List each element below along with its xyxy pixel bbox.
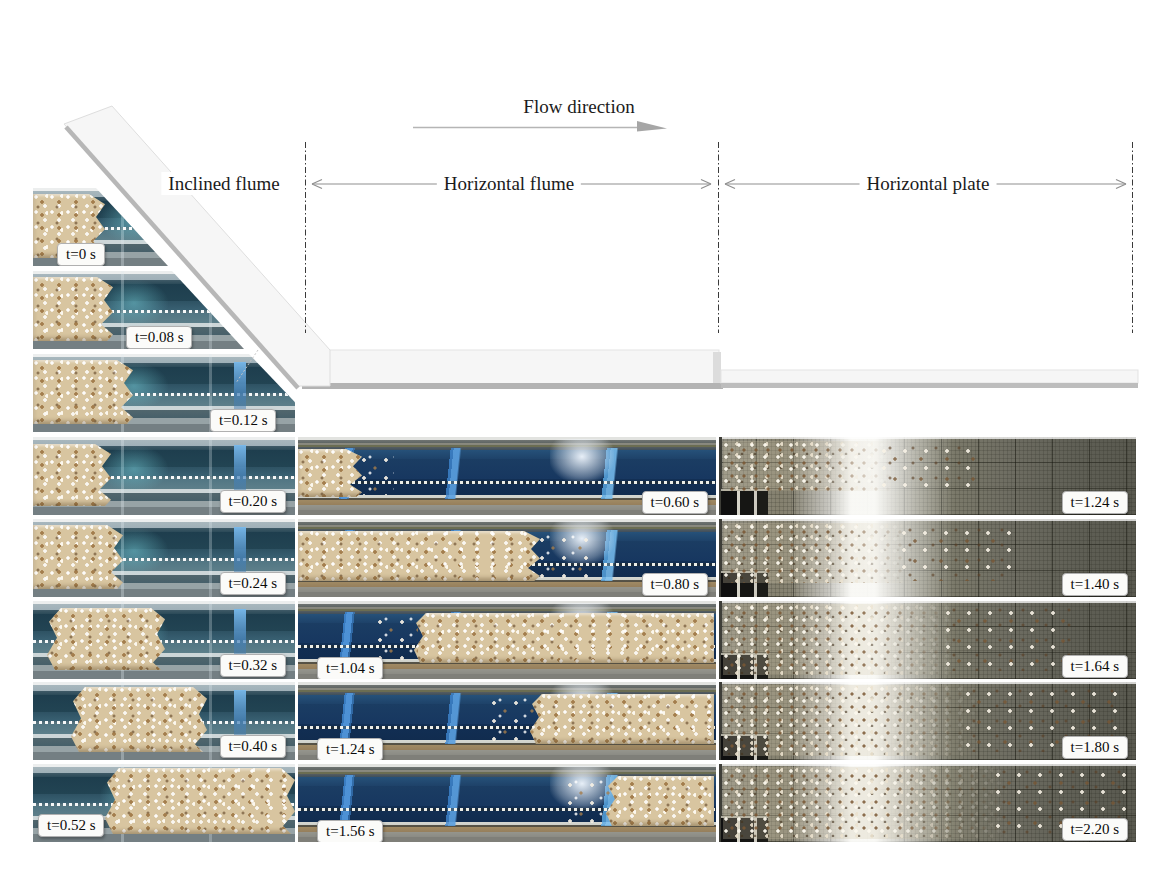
photo-frame-plate-4: t=1.80 s (719, 682, 1136, 760)
blue-stripe (234, 279, 246, 336)
photo-frame-inclined-4: t=0.20 s (33, 437, 295, 515)
granular-mass (33, 360, 133, 424)
granular-mass (414, 613, 714, 663)
photo-frame-inclined-8: t=0.52 s (33, 764, 295, 842)
time-label: t=0.32 s (220, 654, 286, 677)
plate-bottom-shadow (721, 383, 1138, 388)
granular-mass (723, 523, 915, 583)
scattered-grains (566, 780, 610, 824)
granular-mass (298, 449, 362, 497)
granular-mass (298, 531, 540, 581)
time-label: t=0.52 s (38, 814, 104, 837)
scattered-grains (943, 607, 1071, 671)
photo-frame-inclined-7: t=0.40 s (33, 682, 295, 760)
photo-frame-flume-1: t=0.60 s (298, 437, 716, 515)
time-label: t=0 s (57, 243, 105, 266)
photo-frame-plate-2: t=1.40 s (719, 519, 1136, 597)
photo-frame-inclined-5: t=0.24 s (33, 519, 295, 597)
time-label: t=1.24 s (1062, 491, 1128, 514)
flow-direction-label: Flow direction (523, 96, 634, 118)
time-label: t=0.24 s (220, 572, 286, 595)
time-label: t=1.24 s (317, 738, 383, 760)
granular-mass (33, 277, 113, 341)
horizontal-flume-bar (302, 350, 719, 384)
photo-frame-flume-2: t=0.80 s (298, 519, 716, 597)
granular-mass (606, 776, 714, 826)
granular-mass (723, 767, 1013, 839)
photo-frame-flume-3: t=1.04 s (298, 601, 716, 679)
photo-frame-plate-1: t=1.24 s (719, 437, 1136, 515)
scattered-grains (879, 445, 975, 489)
flume-bottom-shadow (302, 383, 723, 389)
time-label: t=1.56 s (317, 820, 383, 842)
photo-frame-inclined-1: t=0 s (33, 188, 295, 266)
scattered-grains (376, 617, 418, 661)
granular-mass (723, 604, 963, 675)
time-label: t=0.40 s (220, 735, 286, 758)
granular-mass (33, 525, 123, 589)
time-label: t=1.04 s (317, 657, 383, 679)
figure-canvas: Flow direction Inclined flume Horizontal… (0, 0, 1170, 878)
photo-frame-plate-5: t=2.20 s (719, 764, 1136, 842)
flume-end-step (713, 352, 721, 383)
time-label: t=1.40 s (1062, 573, 1128, 596)
time-label: t=0.60 s (642, 491, 708, 514)
photo-frame-flume-4: t=1.24 s (298, 682, 716, 760)
time-label: t=0.08 s (126, 326, 192, 349)
granular-mass (530, 694, 714, 744)
light-glare (99, 445, 169, 493)
time-label: t=1.64 s (1062, 655, 1128, 678)
photo-frame-plate-3: t=1.64 s (719, 601, 1136, 679)
scattered-grains (899, 527, 1015, 581)
granular-mass (47, 608, 165, 670)
photo-frame-inclined-3: t=0.12 s (33, 354, 295, 432)
section-label-horizontal-plate: Horizontal plate (860, 172, 997, 195)
photo-frame-inclined-2: t=0.08 s (33, 271, 295, 349)
time-label: t=0.20 s (220, 490, 286, 513)
blue-stripe (234, 196, 246, 253)
granular-mass (105, 768, 295, 834)
time-label: t=2.20 s (1062, 818, 1128, 841)
section-label-horizontal-flume: Horizontal flume (437, 172, 581, 195)
horizontal-plate-bar (721, 370, 1138, 383)
time-label: t=0.12 s (210, 409, 276, 432)
granular-mass (723, 685, 983, 756)
time-label: t=1.80 s (1062, 736, 1128, 759)
granular-mass (71, 687, 207, 752)
scattered-grains (490, 698, 534, 742)
scattered-grains (360, 455, 394, 495)
light-glare (99, 196, 169, 244)
time-label: t=0.80 s (642, 573, 708, 596)
flow-direction-arrow (413, 121, 667, 132)
photo-frame-inclined-6: t=0.32 s (33, 601, 295, 679)
photo-frame-flume-5: t=1.56 s (298, 764, 716, 842)
section-label-inclined-flume: Inclined flume (161, 172, 286, 195)
granular-mass (33, 444, 111, 506)
light-glare (550, 439, 614, 483)
flume-outlet-structure (721, 489, 768, 515)
scattered-grains (538, 535, 590, 579)
granular-mass (723, 441, 893, 491)
